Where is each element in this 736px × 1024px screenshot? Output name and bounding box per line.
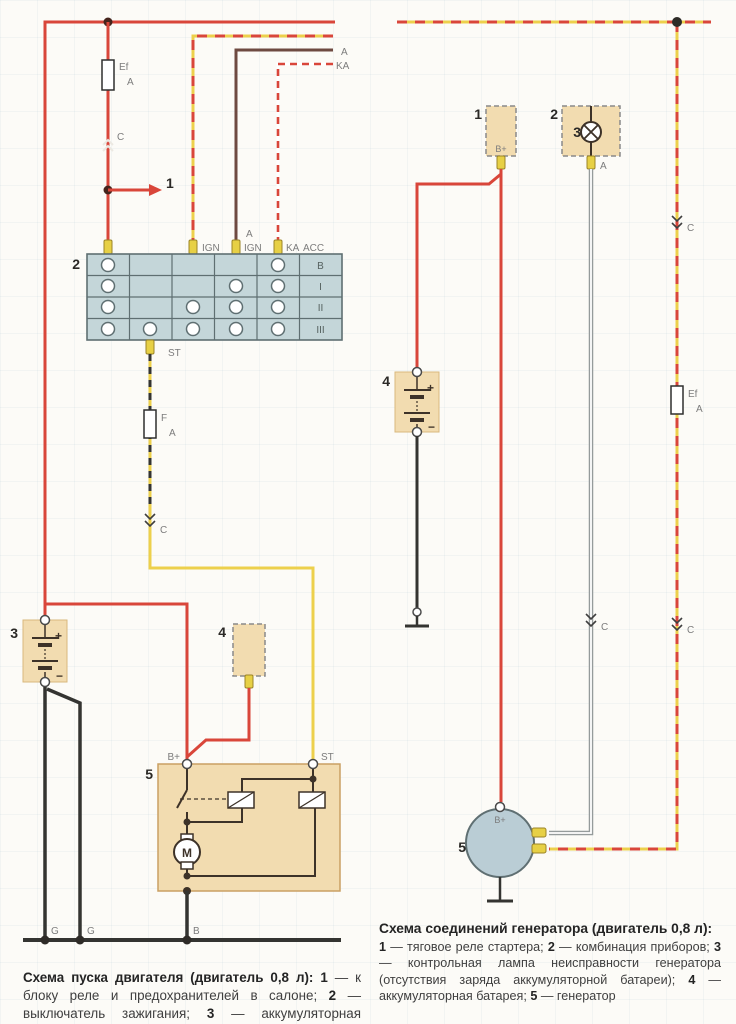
fuse-ef-label: Ef <box>119 62 129 73</box>
branch-arrow-head <box>149 184 162 196</box>
row-label-i: I <box>319 282 322 293</box>
connector-c3-label: C <box>687 625 694 636</box>
generator: B+ <box>466 803 546 902</box>
junction-dot <box>183 936 192 945</box>
wire-ka-label: KA <box>336 61 350 72</box>
ground-b-label: B <box>193 926 200 937</box>
row-label-b: B <box>317 261 324 272</box>
switch-number: 2 <box>72 256 80 272</box>
wire-ign-red-dash <box>193 36 333 240</box>
junction-dot <box>76 936 85 945</box>
junction-dot <box>672 17 682 27</box>
wire-relay-to-battery <box>417 174 501 370</box>
generator-bplus-terminal <box>496 803 505 812</box>
pin-st-label: ST <box>168 348 181 359</box>
fuse-ef <box>102 60 114 90</box>
battery-plus-sign: + <box>55 629 62 643</box>
pin-ign-label: IGN <box>202 243 220 254</box>
connector-c1-label: C <box>687 223 694 234</box>
starter-box: M <box>158 760 340 896</box>
battery-terminal-bottom <box>413 428 422 437</box>
generator-connector-left <box>233 624 265 676</box>
battery-minus-sign: − <box>428 420 435 434</box>
fuse-ef-right-label: Ef <box>688 389 698 400</box>
generator-caption-title: Схема соединений генератора (двигатель 0… <box>379 920 721 938</box>
fuse-ef-right-amp-label: A <box>696 404 703 415</box>
wire-ground-2 <box>47 689 80 940</box>
starter-bplus-terminal <box>183 760 192 769</box>
battery-left: + − <box>23 616 67 687</box>
starter-bplus-label: B+ <box>167 752 180 763</box>
junction-dot <box>310 776 317 783</box>
battery-terminal-top <box>413 368 422 377</box>
pin-st <box>146 340 154 354</box>
wire-exciter-yellow-base <box>397 22 711 849</box>
generator-pin-top <box>532 828 546 837</box>
generator-caption-body: 1 — тяговое реле стартера; 2 — комбинаци… <box>379 939 721 1004</box>
motor-label: M <box>182 846 192 860</box>
starter-st-terminal <box>309 760 318 769</box>
relay-pin <box>497 156 505 169</box>
lamp-number: 3 <box>573 124 581 140</box>
fuse-f-amp-label: A <box>169 428 176 439</box>
row-label-ii: II <box>318 303 324 314</box>
cluster-number: 2 <box>550 106 558 122</box>
wire-ka-white-base <box>278 64 333 240</box>
left-circuit: Ef A C 1 A KA IGN A IGN KA AC <box>10 18 349 945</box>
generator-bplus-label: B+ <box>494 815 505 825</box>
cluster-pin-a-label: A <box>600 161 607 172</box>
ground-g2-label: G <box>87 926 95 937</box>
wire-exciter-red-dash <box>397 22 711 849</box>
wire-a-brown <box>236 50 333 240</box>
pin-ign2-label: IGN <box>244 243 262 254</box>
starter-circuit-caption: Схема пуска двигателя (двигатель 0,8 л):… <box>23 969 361 1024</box>
pin-a-label: A <box>246 229 253 240</box>
schematic-page: Ef A C 1 A KA IGN A IGN KA AC <box>0 0 736 1024</box>
ignition-switch-block: B I II III <box>87 254 342 340</box>
battery-terminal-top <box>41 616 50 625</box>
relay-bplus-label: B+ <box>495 144 506 154</box>
relay-number: 1 <box>474 106 482 122</box>
fuse-f-label: F <box>161 413 167 424</box>
battery-number: 3 <box>10 625 18 641</box>
ground-g1-label: G <box>51 926 59 937</box>
pin-acc-label: ACC <box>303 243 324 254</box>
wire-ka-red-dash <box>278 64 333 240</box>
generator-right-number: 5 <box>458 839 466 855</box>
pin-ka-label: KA <box>286 243 300 254</box>
wire-lamp-gray <box>549 169 591 833</box>
wire-lamp-gray-core <box>549 169 591 833</box>
battery-minus-sign: − <box>56 669 63 683</box>
wire-generator-red <box>187 688 249 757</box>
branch-number: 1 <box>166 175 174 191</box>
generator-pin-bottom <box>532 844 546 853</box>
junction-dot <box>184 819 191 826</box>
battery-right: + − <box>395 368 439 437</box>
connector-c2-label: C <box>601 622 608 633</box>
battery-plus-sign: + <box>427 381 434 395</box>
junction-dot <box>41 936 50 945</box>
connector-c-label: C <box>117 132 124 143</box>
wire-st-yellow <box>150 354 313 764</box>
generator-pin <box>245 675 253 688</box>
wiring-diagram: Ef A C 1 A KA IGN A IGN KA AC <box>0 0 736 1024</box>
junction-dot <box>184 873 191 880</box>
wire-a-label: A <box>341 47 348 58</box>
right-circuit: C Ef A C 1 B+ 2 3 A C <box>382 17 711 901</box>
wire-ign-yellow-base <box>193 36 333 240</box>
fuse-f <box>144 410 156 438</box>
connector-c2-label: C <box>160 525 167 536</box>
generator-number-left: 4 <box>218 624 226 640</box>
cluster-pin <box>587 156 595 169</box>
battery-terminal-bottom <box>41 678 50 687</box>
starter-st-label: ST <box>321 752 334 763</box>
generator-circuit-caption: Схема соединений генератора (двигатель 0… <box>379 920 721 1004</box>
starter-number: 5 <box>145 766 153 782</box>
battery-right-number: 4 <box>382 373 390 389</box>
fuse-ef-amp-label: A <box>127 77 134 88</box>
instrument-cluster <box>562 106 620 156</box>
row-label-iii: III <box>316 325 324 336</box>
ground-connector <box>413 608 421 616</box>
fuse-ef-right <box>671 386 683 414</box>
